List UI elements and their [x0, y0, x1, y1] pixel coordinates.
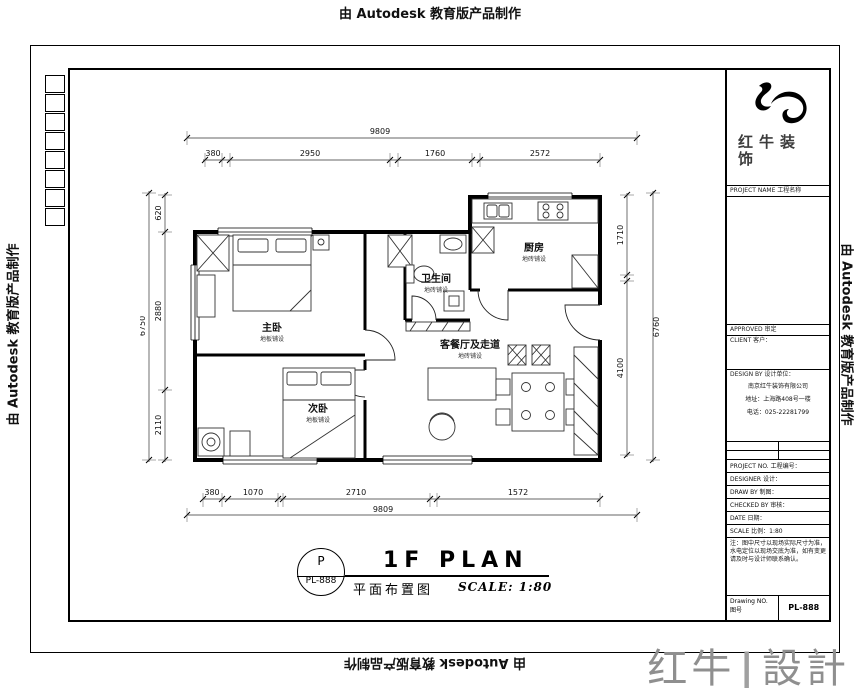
dim-bottom-4: 1572	[508, 488, 528, 497]
kitchen-shaft	[472, 227, 494, 253]
tb-field-project-no: PROJECT NO. 工程编号：	[727, 460, 829, 473]
floor-plan: 9809 380 2950 1760 2572 380 1070 2710 15…	[140, 115, 670, 535]
dim-right-2: 4100	[616, 358, 625, 378]
dim-bottom-2: 1070	[243, 488, 263, 497]
room-finish-living-dining: 地砖铺设	[458, 352, 482, 360]
bathroom-door	[412, 296, 436, 320]
room-finish-second-bedroom: 地板铺设	[306, 416, 330, 424]
refrigerator	[572, 255, 598, 288]
dim-left-2: 2880	[154, 301, 163, 321]
dim-left-total: 6750	[140, 316, 147, 336]
tb-field-draw-by: DRAW BY 制图：	[727, 486, 829, 499]
master-wardrobe	[197, 235, 229, 271]
tb-drawing-no-label: Drawing NO. 图号	[727, 596, 779, 620]
tb-approved-row: APPROVED 审定	[727, 325, 829, 336]
dim-top-1: 380	[205, 149, 220, 158]
floor-drain	[444, 291, 464, 311]
coffee-table	[428, 368, 496, 400]
room-finish-kitchen: 地砖铺设	[522, 255, 546, 263]
sideboard-hatched	[508, 345, 550, 365]
company-address: 地址：上海路408号一楼	[727, 393, 829, 406]
brand-logo: 红牛|設計	[647, 636, 850, 688]
fold-marks	[45, 75, 65, 227]
dining-table	[512, 373, 564, 431]
armchair	[429, 413, 455, 440]
duct-shaft	[388, 235, 412, 267]
company-phone: 电话：025-22281799	[727, 406, 829, 419]
dim-left-3: 2110	[154, 415, 163, 435]
dim-right-1: 1710	[616, 225, 625, 245]
dim-bottom-1: 380	[204, 488, 219, 497]
watermark-left: 由 Autodesk 教育版产品制作	[3, 225, 22, 445]
company-logo-cell: 红牛装 饰	[727, 70, 829, 186]
laundry-cabinet	[230, 431, 250, 456]
tb-blank-split-row-2	[727, 451, 829, 460]
master-nightstand	[313, 235, 329, 250]
room-finish-bathroom: 地砖铺设	[424, 286, 448, 294]
tb-field-scale: SCALE 比例：1:80	[727, 525, 829, 538]
tb-blank-split-row-1	[727, 442, 829, 451]
tb-project-name-cell	[727, 197, 829, 325]
tb-field-checked-by: CHECKED BY 审核：	[727, 499, 829, 512]
company-logo-text-line1: 红牛装	[738, 134, 818, 151]
room-finish-master-bedroom: 地板铺设	[260, 335, 284, 343]
dim-top-2: 2950	[300, 149, 320, 158]
tb-drawing-no-value: PL-888	[779, 596, 830, 620]
watermark-bottom: 由 Autodesk 教育版产品制作	[325, 655, 545, 674]
room-label-kitchen: 厨房	[524, 241, 544, 254]
tb-company-cell: DESIGN BY 设计单位： 南京红牛装饰有限公司 地址：上海路408号一楼 …	[727, 370, 829, 442]
tb-notes: 注：图中尺寸以现场实际尺寸为准，水电定位以现场交底为准，如有变更请及时与设计师联…	[727, 538, 829, 596]
stamp-divider	[297, 576, 345, 577]
washing-machine	[198, 428, 224, 456]
company-name: 南京红牛装饰有限公司	[727, 380, 829, 393]
dim-top-4: 2572	[530, 149, 550, 158]
brand-divider: |	[735, 646, 762, 688]
dim-top-total: 9809	[370, 127, 390, 136]
dim-top-3: 1760	[425, 149, 445, 158]
master-bedroom-door	[365, 330, 395, 360]
master-bed	[233, 235, 311, 311]
company-logo-text-line2: 饰	[738, 151, 818, 168]
drawing-title-cn: 平面布置图	[353, 579, 433, 598]
tb-field-date: DATE 日期：	[727, 512, 829, 525]
room-label-master-bedroom: 主卧	[262, 321, 282, 334]
dim-right-total: 6760	[652, 317, 661, 337]
dim-left-1: 620	[154, 205, 163, 220]
tv-cabinet	[406, 322, 470, 331]
dim-bottom-3: 2710	[346, 488, 366, 497]
watermark-top: 由 Autodesk 教育版产品制作	[0, 3, 860, 22]
stamp-letter: P	[298, 549, 344, 573]
shoe-cabinet	[574, 347, 598, 455]
title-block: 红牛装 饰 PROJECT NAME 工程名称 APPROVED 审定 CLIE…	[725, 68, 831, 622]
brand-left: 红牛	[647, 646, 735, 688]
tb-design-by-label: DESIGN BY 设计单位：	[727, 370, 829, 380]
room-label-second-bedroom: 次卧	[308, 402, 328, 415]
bull-logo-icon	[741, 78, 815, 134]
room-label-living-dining: 客餐厅及走道	[439, 338, 500, 351]
stove	[538, 202, 568, 220]
tb-project-name-row: PROJECT NAME 工程名称	[727, 186, 829, 197]
watermark-right: 由 Autodesk 教育版产品制作	[839, 225, 858, 445]
washbasin	[440, 235, 466, 253]
tb-client-row: CLIENT 客户：	[727, 336, 829, 370]
brand-right: 設計	[762, 646, 850, 688]
kitchen-door	[478, 290, 508, 320]
room-label-bathroom: 卫生间	[421, 272, 451, 285]
kitchen-sink	[484, 203, 512, 219]
entry-door	[565, 305, 600, 340]
tb-field-designer: DESIGNER 设计：	[727, 473, 829, 486]
master-dresser	[197, 275, 215, 317]
drawing-stamp: P PL-888	[297, 548, 345, 596]
drawing-scale: SCALE: 1:80	[458, 580, 552, 594]
furniture	[197, 199, 598, 458]
tb-drawing-no-row: Drawing NO. 图号 PL-888	[727, 596, 829, 620]
drawing-title-en: 1F PLAN	[383, 548, 529, 573]
dim-bottom-total: 9809	[373, 505, 393, 514]
title-underline	[345, 575, 549, 577]
